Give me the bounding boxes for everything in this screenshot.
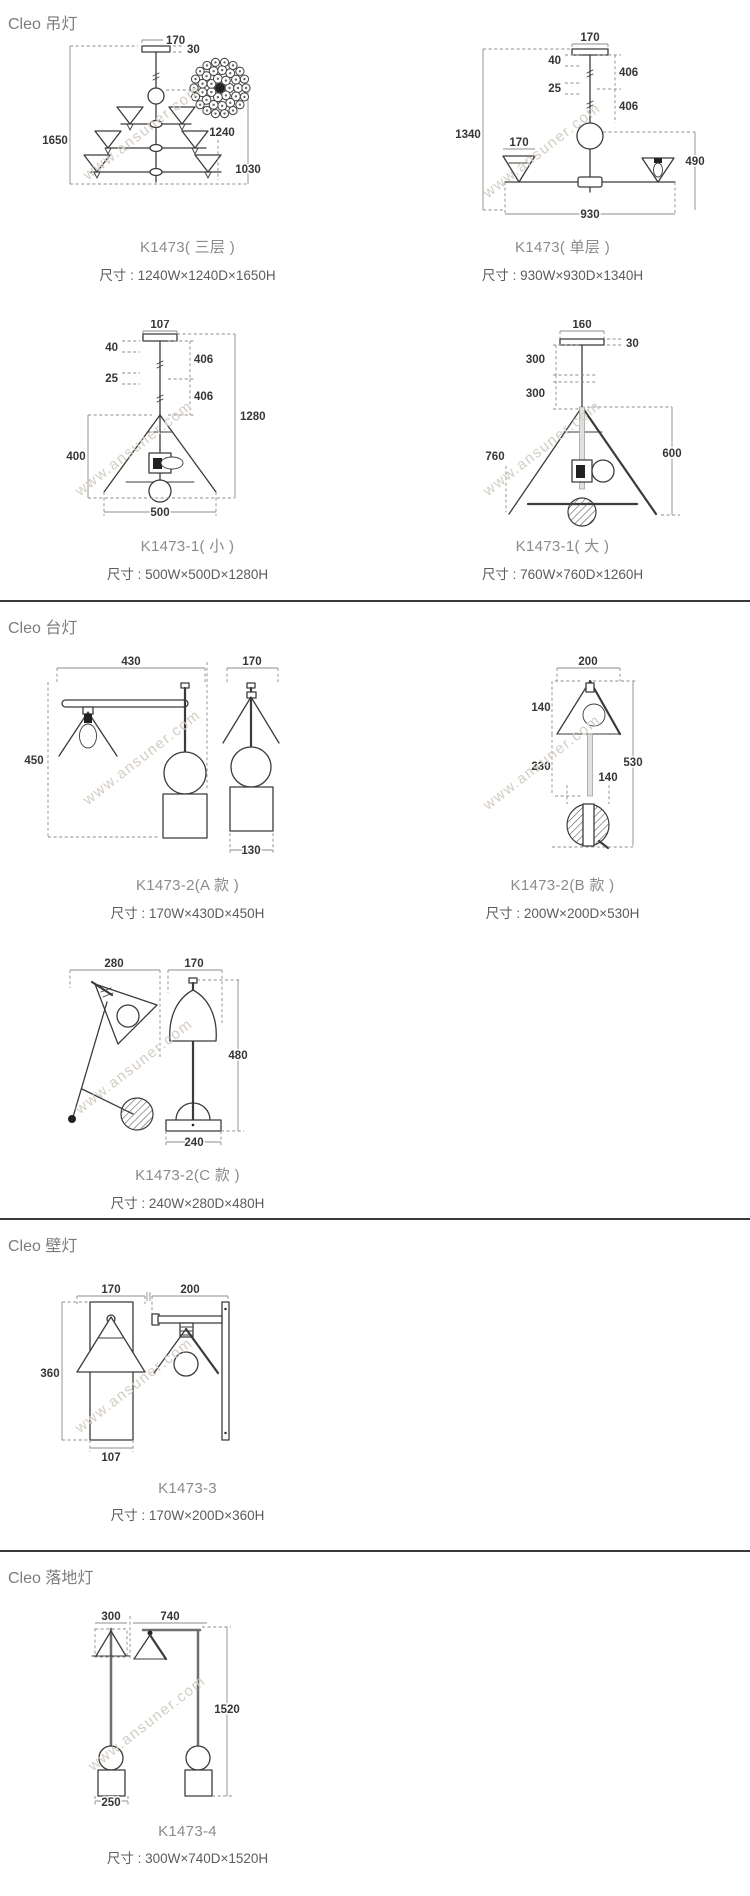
section-title: Cleo 台灯 [0, 602, 750, 634]
sphere [577, 123, 603, 149]
bulb [117, 1005, 139, 1027]
dim-label: 1240 [209, 127, 235, 139]
section-table-lamps: Cleo 台灯 www.ansuner.com 430 170 450 [0, 600, 750, 1218]
bulb [161, 457, 183, 469]
dim-label: 30 [187, 44, 200, 56]
k1473-single-tier-diagram: 170 40 406 25 406 170 [375, 32, 750, 228]
dim-label: 600 [662, 448, 681, 460]
product-cell-k1473-2a: www.ansuner.com 430 170 450 [0, 654, 375, 922]
k1473-2c-diagram: 280 170 480 [0, 958, 375, 1156]
dim-label: 170 [509, 137, 528, 149]
dim-label: 740 [160, 1611, 179, 1623]
table-row-2: www.ansuner.com 280 170 [0, 958, 750, 1212]
bulb [592, 460, 614, 482]
dim-label: 170 [242, 656, 261, 668]
product-name: K1473( 三层 ) [140, 236, 235, 257]
canopy [560, 339, 604, 345]
dim-label: 760 [485, 451, 504, 463]
dim-label: 170 [166, 35, 185, 47]
dim-label: 160 [572, 320, 591, 331]
stem [588, 734, 593, 796]
pendant-row-2: www.ansuner.com 107 40 406 25 406 [0, 320, 750, 583]
bulb [80, 724, 97, 748]
base [163, 794, 207, 838]
dim-label: 1650 [42, 135, 68, 147]
canopy [142, 46, 170, 52]
product-cell-k1473-2b: www.ansuner.com 200 140 230 140 [375, 654, 750, 922]
product-size: 尺寸 : 500W×500D×1280H [107, 563, 268, 583]
dim-label: 300 [526, 354, 545, 366]
dim-label: 1030 [235, 164, 261, 176]
arm [62, 700, 188, 707]
section-pendant-lamps: Cleo 吊灯 www.ansuner.com 170 30 [0, 0, 750, 600]
base [98, 1770, 125, 1796]
pendant-row-1: www.ansuner.com 170 30 [0, 32, 750, 284]
dim-label: 130 [241, 845, 260, 857]
product-cell-k1473-4: www.ansuner.com 300 740 250 [0, 1610, 375, 1867]
dim-label: 406 [619, 101, 638, 113]
product-cell-k1473-2c: www.ansuner.com 280 170 [0, 958, 375, 1212]
section-title: Cleo 壁灯 [0, 1220, 750, 1252]
product-size: 尺寸 : 200W×200D×530H [486, 902, 640, 922]
shade-cone [77, 1317, 145, 1372]
bulb [654, 163, 663, 177]
dim-label: 30 [626, 338, 639, 350]
dim-label: 40 [548, 55, 561, 67]
shade-cone [134, 1635, 150, 1659]
shade-bell [170, 990, 217, 1041]
product-size: 尺寸 : 760W×760D×1260H [482, 563, 643, 583]
dim-label: 500 [150, 507, 169, 519]
shade-cone [503, 156, 535, 182]
product-name: K1473-2(C 款 ) [135, 1164, 240, 1185]
product-cell-k1473-1tier: www.ansuner.com 170 40 406 25 406 [375, 32, 750, 284]
shade-cones [84, 107, 221, 178]
dim-label: 930 [580, 209, 599, 221]
product-name: K1473-3 [158, 1480, 217, 1497]
dim-label: 170 [101, 1284, 120, 1296]
product-size: 尺寸 : 170W×200D×360H [111, 1504, 265, 1524]
shade-cone [557, 681, 590, 734]
sphere [148, 88, 164, 104]
sphere [164, 752, 206, 794]
dim-label: 170 [580, 32, 599, 44]
k1473-4-diagram: 300 740 250 [0, 1610, 375, 1815]
arm [158, 1316, 222, 1323]
dim-label: 1520 [214, 1704, 240, 1716]
top-view-cluster [190, 58, 250, 117]
bulb [174, 1352, 198, 1376]
shade-socket [586, 683, 594, 692]
sphere [149, 480, 171, 502]
product-cell-k1473-1-large: www.ansuner.com 160 30 300 300 [375, 320, 750, 583]
product-size: 尺寸 : 930W×930D×1340H [482, 264, 643, 284]
dim-label: 107 [150, 320, 169, 331]
section-wall-lamps: Cleo 壁灯 www.ansuner.com 170 200 360 [0, 1218, 750, 1550]
dim-label: 25 [548, 83, 561, 95]
dim-label: 230 [531, 761, 550, 773]
section-floor-lamps: Cleo 落地灯 www.ansuner.com 300 740 250 [0, 1550, 750, 1896]
section-title: Cleo 吊灯 [0, 0, 750, 30]
dim-label: 170 [184, 958, 203, 970]
foot [68, 1115, 76, 1123]
section-title: Cleo 落地灯 [0, 1552, 750, 1584]
dim-label: 450 [24, 755, 43, 767]
sphere [99, 1746, 123, 1770]
k1473-2a-diagram: 430 170 450 [0, 654, 375, 866]
bulb [583, 704, 605, 726]
dim-label: 406 [194, 391, 213, 403]
dim-label: 300 [526, 388, 545, 400]
product-cell-k1473-3: www.ansuner.com 170 200 360 107 [0, 1282, 375, 1524]
leg [73, 1002, 107, 1117]
dim-label: 490 [685, 156, 704, 168]
product-cell-k1473-1-small: www.ansuner.com 107 40 406 25 406 [0, 320, 375, 583]
dim-label: 530 [623, 757, 642, 769]
counterweight [121, 1098, 153, 1130]
product-name: K1473-2(A 款 ) [136, 874, 239, 895]
canopy [572, 49, 608, 55]
product-size: 尺寸 : 170W×430D×450H [111, 902, 265, 922]
dim-label: 107 [101, 1452, 120, 1464]
k1473-three-tier-diagram: 170 30 [0, 32, 375, 228]
wall-bar [222, 1302, 229, 1440]
dim-label: 40 [105, 342, 118, 354]
dim-label: 25 [105, 373, 118, 385]
sphere [568, 498, 596, 526]
dim-label: 200 [578, 656, 597, 668]
dim-label: 300 [101, 1611, 120, 1623]
dim-label: 400 [66, 451, 85, 463]
dim-label: 406 [194, 354, 213, 366]
base [185, 1770, 212, 1796]
dim-label: 1340 [455, 129, 481, 141]
k1473-1-small-diagram: 107 40 406 25 406 [0, 320, 375, 527]
product-cell-k1473-3tier: www.ansuner.com 170 30 [0, 32, 375, 284]
product-size: 尺寸 : 1240W×1240D×1650H [99, 264, 275, 284]
product-size: 尺寸 : 300W×740D×1520H [107, 1847, 268, 1867]
dim-label: 140 [598, 772, 617, 784]
dim-label: 360 [40, 1368, 59, 1380]
k1473-2b-diagram: 200 140 230 140 530 [375, 654, 750, 866]
dim-label: 1280 [240, 411, 266, 423]
dim-label: 140 [531, 702, 550, 714]
shade-cone [509, 407, 582, 514]
k1473-1-large-diagram: 160 30 300 300 760 [375, 320, 750, 527]
canopy [143, 334, 177, 341]
dim-label: 200 [180, 1284, 199, 1296]
product-name: K1473-1( 小 ) [141, 535, 235, 556]
product-name: K1473-1( 大 ) [516, 535, 610, 556]
table-row-1: www.ansuner.com 430 170 450 [0, 654, 750, 922]
sphere [231, 747, 271, 787]
dim-label: 430 [121, 656, 140, 668]
k1473-3-diagram: 170 200 360 107 [0, 1282, 375, 1464]
product-name: K1473-4 [158, 1823, 217, 1840]
product-name: K1473( 单层 ) [515, 236, 610, 257]
wall-row: www.ansuner.com 170 200 360 107 [0, 1282, 750, 1524]
dim-label: 250 [101, 1797, 120, 1809]
sphere [186, 1746, 210, 1770]
dim-label: 480 [228, 1050, 247, 1062]
floor-row: www.ansuner.com 300 740 250 [0, 1610, 750, 1867]
dim-label: 406 [619, 67, 638, 79]
bulb-socket [654, 158, 662, 163]
dim-label: 240 [184, 1137, 203, 1149]
product-name: K1473-2(B 款 ) [511, 874, 615, 895]
dim-label: 280 [104, 958, 123, 970]
base [230, 787, 273, 831]
product-size: 尺寸 : 240W×280D×480H [111, 1192, 265, 1212]
